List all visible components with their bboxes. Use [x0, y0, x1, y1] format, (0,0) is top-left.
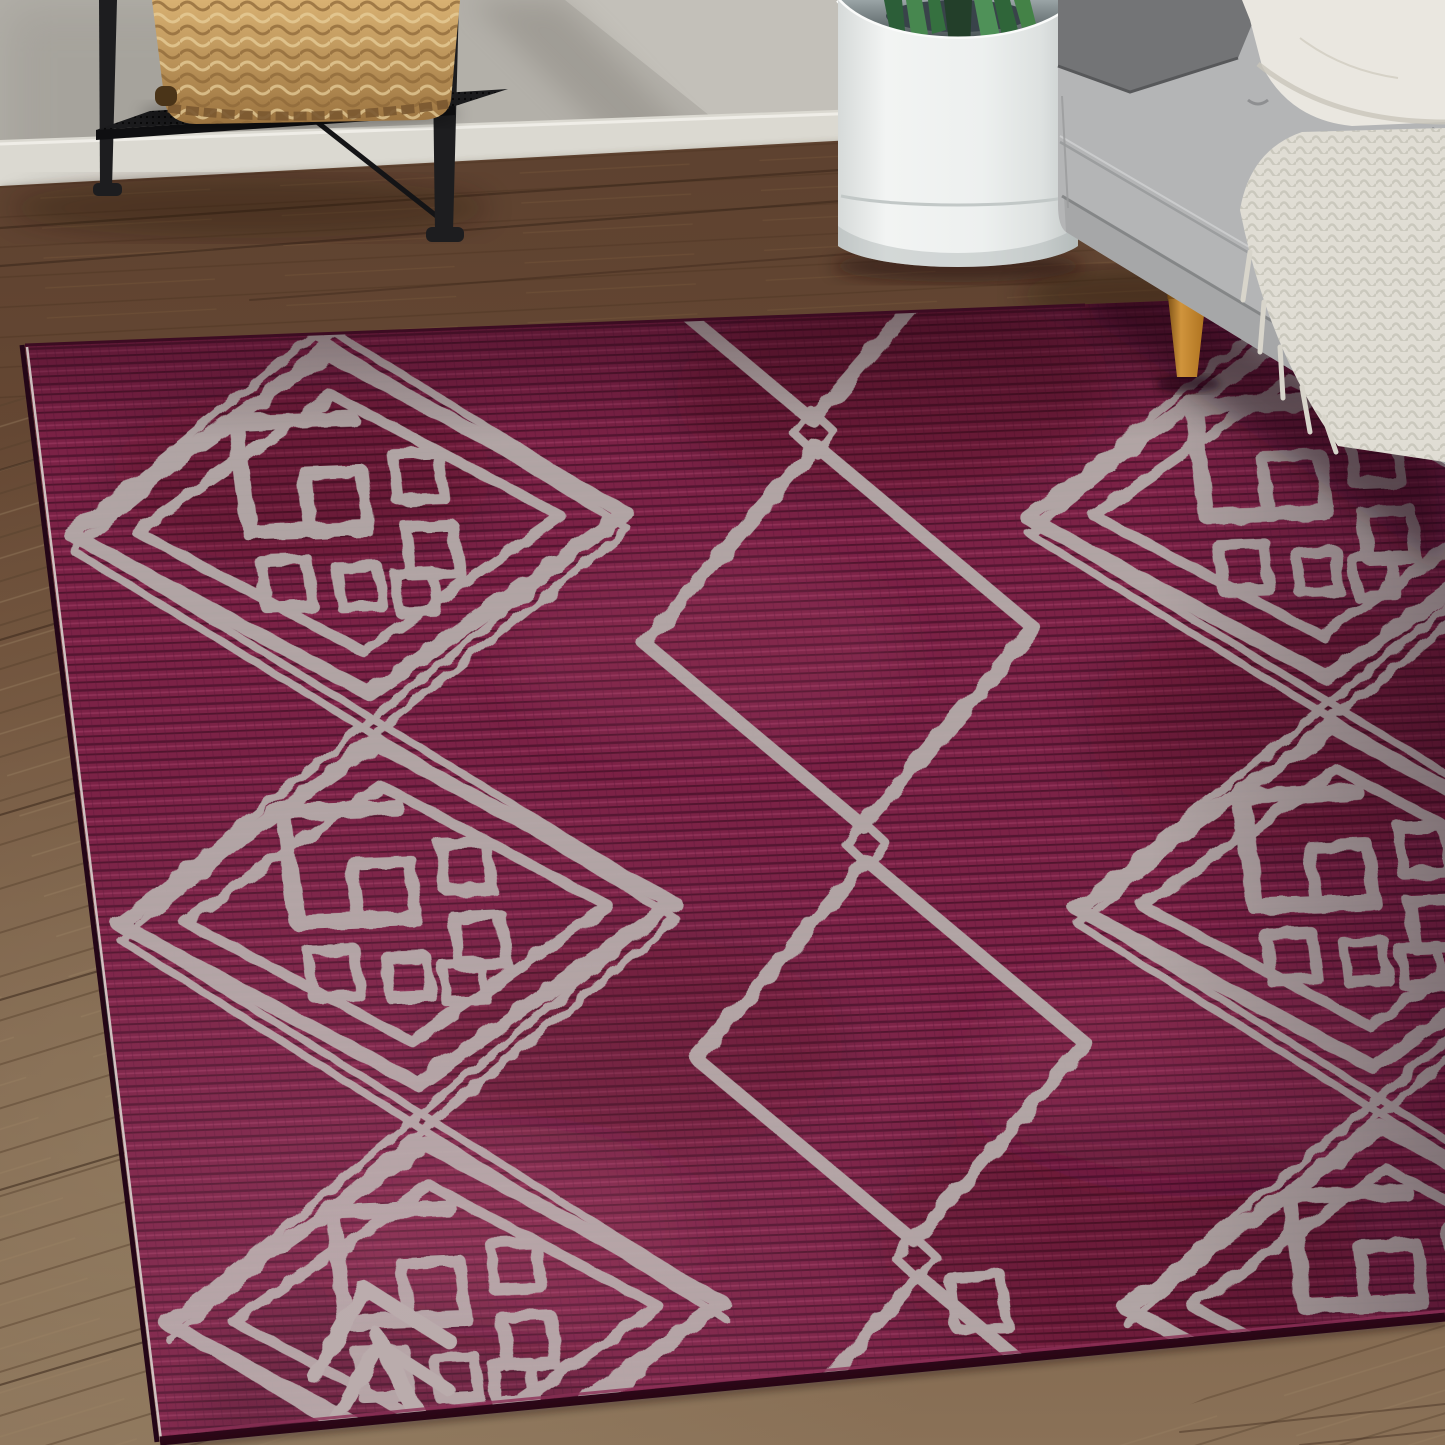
basket: [152, 0, 460, 124]
living-room-scene: Lifestyle product photo: maroon area rug…: [0, 0, 1445, 1445]
photo-root: Lifestyle product photo: maroon area rug…: [0, 0, 1445, 1445]
shelf-foot-left: [93, 183, 122, 196]
shelf-floor-shadow: [10, 178, 490, 238]
planter-group: [838, 0, 1078, 267]
shelf-foot-right: [426, 227, 464, 242]
planter-body: [838, 0, 1078, 267]
sofa-leg-shadow: [1156, 375, 1220, 393]
basket-group: [152, 0, 460, 124]
basket-handle-hole: [155, 86, 177, 106]
